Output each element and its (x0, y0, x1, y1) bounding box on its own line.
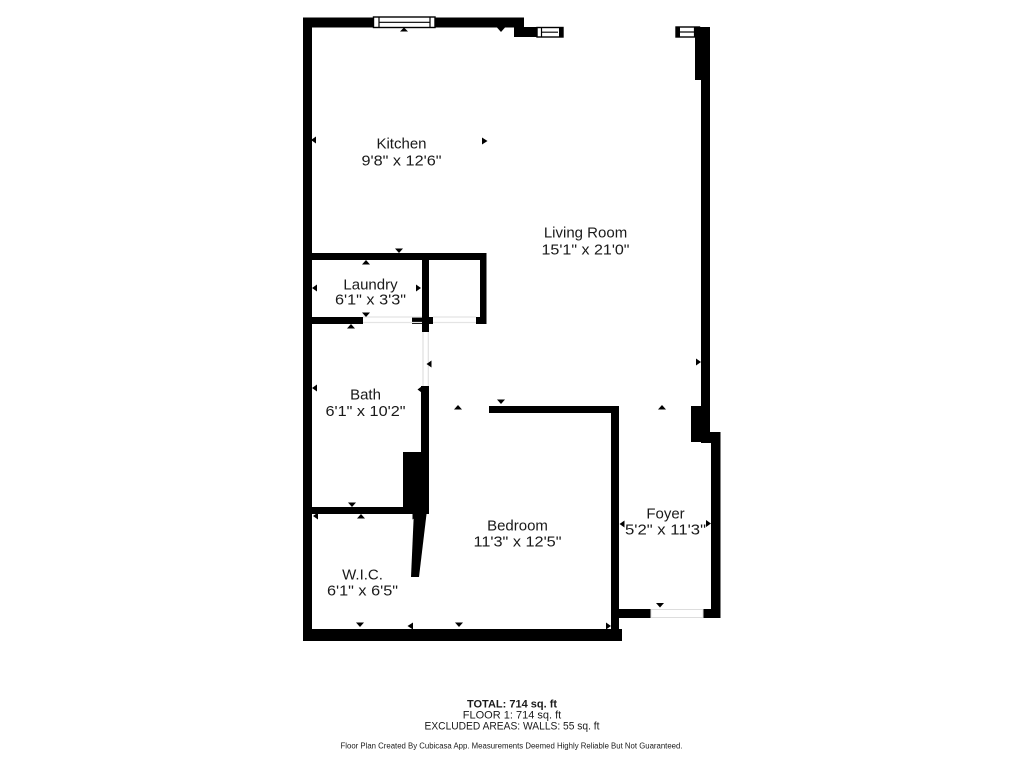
svg-text:11'3" x 12'5": 11'3" x 12'5" (474, 534, 562, 551)
svg-text:Bath: Bath (350, 387, 381, 404)
svg-text:Foyer: Foyer (646, 506, 684, 523)
svg-text:6'1" x 3'3": 6'1" x 3'3" (335, 292, 406, 309)
svg-text:Floor Plan Created By Cubicasa: Floor Plan Created By Cubicasa App. Meas… (341, 742, 683, 751)
svg-text:6'1" x 6'5": 6'1" x 6'5" (327, 583, 398, 600)
svg-text:6'1" x 10'2": 6'1" x 10'2" (326, 403, 406, 420)
svg-text:EXCLUDED AREAS: WALLS: 55 sq.: EXCLUDED AREAS: WALLS: 55 sq. ft (425, 721, 600, 733)
svg-text:Bedroom: Bedroom (487, 518, 548, 535)
svg-text:Living Room: Living Room (544, 225, 627, 242)
svg-text:Kitchen: Kitchen (376, 136, 426, 153)
svg-text:15'1" x 21'0": 15'1" x 21'0" (542, 242, 630, 259)
svg-text:W.I.C.: W.I.C. (342, 567, 383, 584)
svg-text:5'2" x 11'3": 5'2" x 11'3" (625, 522, 706, 539)
svg-text:9'8" x 12'6": 9'8" x 12'6" (362, 153, 442, 170)
